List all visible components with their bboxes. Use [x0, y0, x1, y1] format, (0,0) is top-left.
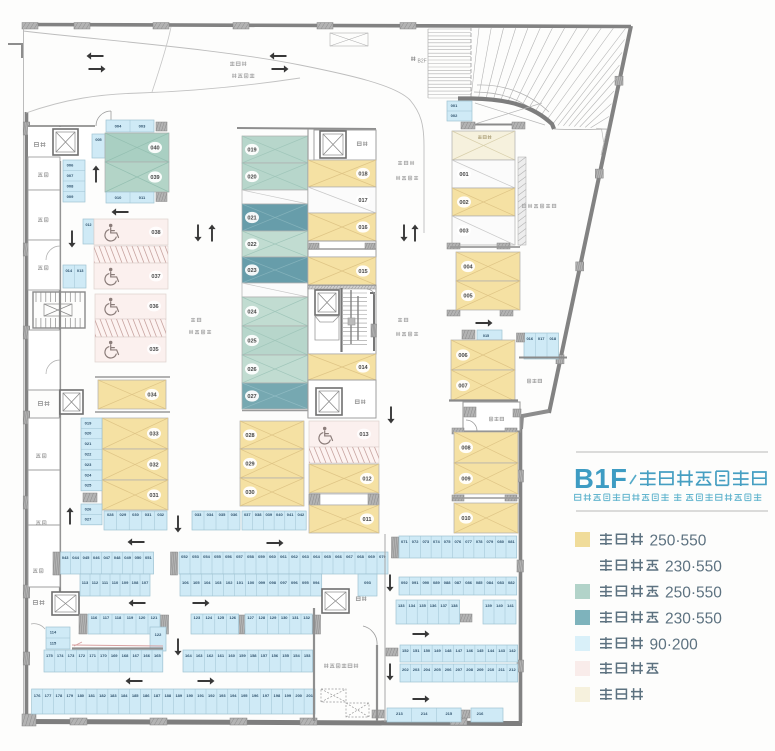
svg-text:072: 072	[412, 539, 419, 544]
svg-text:90·200: 90·200	[650, 637, 699, 654]
svg-text:067: 067	[346, 554, 353, 559]
svg-text:012: 012	[362, 477, 371, 483]
svg-text:211: 211	[498, 667, 505, 672]
svg-text:230·550: 230·550	[665, 559, 722, 576]
svg-text:068: 068	[357, 554, 364, 559]
svg-text:114: 114	[50, 630, 57, 635]
svg-text:181: 181	[88, 693, 95, 698]
svg-text:025: 025	[247, 339, 256, 345]
svg-text:198: 198	[274, 693, 281, 698]
svg-text:058: 058	[247, 554, 254, 559]
svg-text:B2F: B2F	[418, 59, 427, 65]
svg-text:199: 199	[284, 693, 291, 698]
svg-text:148: 148	[445, 648, 452, 653]
svg-text:206: 206	[445, 667, 452, 672]
svg-text:186: 186	[143, 693, 150, 698]
svg-text:101: 101	[237, 580, 244, 585]
svg-text:190: 190	[186, 693, 193, 698]
svg-text:009: 009	[461, 477, 470, 483]
svg-text:128: 128	[258, 615, 265, 620]
svg-text:033: 033	[149, 432, 158, 438]
svg-text:153: 153	[304, 653, 311, 658]
svg-text:005: 005	[95, 138, 101, 142]
svg-text:174: 174	[57, 653, 64, 658]
svg-text:006: 006	[67, 162, 74, 167]
svg-text:028: 028	[245, 433, 254, 439]
svg-text:013: 013	[77, 268, 84, 273]
svg-text:089: 089	[433, 580, 440, 585]
svg-text:159: 159	[239, 653, 246, 658]
svg-text:107: 107	[142, 580, 149, 585]
svg-text:003: 003	[459, 229, 468, 235]
svg-text:043: 043	[62, 555, 69, 560]
svg-text:075: 075	[444, 539, 451, 544]
svg-text:169: 169	[111, 653, 118, 658]
svg-text:212: 212	[509, 667, 516, 672]
svg-text:074: 074	[433, 539, 440, 544]
svg-text:036: 036	[231, 512, 238, 517]
svg-text:010: 010	[115, 195, 122, 200]
svg-text:032: 032	[157, 512, 164, 517]
svg-text:003: 003	[139, 124, 146, 129]
svg-text:145: 145	[477, 648, 484, 653]
svg-text:046: 046	[93, 555, 100, 560]
svg-text:205: 205	[434, 667, 441, 672]
svg-text:173: 173	[68, 653, 75, 658]
svg-text:019: 019	[247, 148, 256, 154]
svg-text:207: 207	[456, 667, 463, 672]
svg-text:140: 140	[496, 603, 503, 608]
svg-text:014: 014	[65, 268, 72, 273]
svg-text:008: 008	[461, 446, 470, 452]
svg-text:055: 055	[214, 554, 221, 559]
svg-text:161: 161	[217, 653, 224, 658]
svg-text:133: 133	[398, 603, 405, 608]
svg-text:076: 076	[455, 539, 462, 544]
svg-text:180: 180	[77, 693, 84, 698]
svg-text:123: 123	[194, 615, 201, 620]
svg-text:073: 073	[422, 539, 429, 544]
svg-text:021: 021	[85, 441, 92, 446]
svg-text:018: 018	[358, 172, 367, 178]
svg-text:170: 170	[100, 653, 107, 658]
svg-text:069: 069	[368, 554, 375, 559]
svg-text:015: 015	[483, 334, 489, 338]
svg-text:172: 172	[78, 653, 85, 658]
svg-text:187: 187	[154, 693, 161, 698]
svg-text:193: 193	[219, 693, 226, 698]
svg-text:185: 185	[132, 693, 139, 698]
svg-text:194: 194	[230, 693, 237, 698]
svg-text:049: 049	[124, 555, 131, 560]
svg-text:171: 171	[89, 653, 96, 658]
svg-text:014: 014	[358, 365, 368, 371]
svg-text:041: 041	[287, 512, 294, 517]
svg-text:040: 040	[150, 146, 159, 152]
svg-text:105: 105	[193, 580, 200, 585]
svg-text:184: 184	[121, 693, 128, 698]
svg-text:113: 113	[82, 580, 89, 585]
svg-text:008: 008	[67, 183, 74, 188]
svg-text:144: 144	[488, 648, 495, 653]
svg-text:109: 109	[122, 580, 129, 585]
svg-text:106: 106	[182, 580, 189, 585]
svg-text:053: 053	[192, 554, 199, 559]
svg-text:059: 059	[258, 554, 265, 559]
svg-text:120: 120	[139, 615, 146, 620]
svg-text:009: 009	[67, 194, 74, 199]
svg-text:196: 196	[252, 693, 259, 698]
svg-text:037: 037	[151, 274, 160, 280]
svg-text:192: 192	[208, 693, 215, 698]
svg-text:007: 007	[67, 173, 74, 178]
svg-text:202: 202	[402, 667, 409, 672]
svg-text:031: 031	[145, 512, 152, 517]
svg-text:048: 048	[114, 555, 121, 560]
svg-text:201: 201	[306, 693, 313, 698]
svg-text:085: 085	[476, 580, 483, 585]
svg-text:152: 152	[402, 648, 409, 653]
svg-text:188: 188	[164, 693, 171, 698]
svg-text:011: 011	[362, 517, 371, 523]
svg-text:097: 097	[280, 580, 287, 585]
svg-text:115: 115	[50, 641, 57, 646]
svg-text:092: 092	[401, 580, 408, 585]
svg-text:001: 001	[451, 103, 458, 108]
svg-text:134: 134	[409, 603, 416, 608]
svg-text:017: 017	[358, 198, 367, 204]
svg-text:204: 204	[423, 667, 430, 672]
svg-text:050: 050	[135, 555, 142, 560]
svg-text:112: 112	[92, 580, 99, 585]
svg-text:037: 037	[244, 512, 251, 517]
svg-text:071: 071	[401, 539, 408, 544]
svg-text:036: 036	[149, 304, 158, 310]
svg-text:001: 001	[459, 172, 468, 178]
svg-text:096: 096	[291, 580, 298, 585]
svg-text:250·550: 250·550	[650, 533, 707, 550]
svg-text:038: 038	[151, 230, 160, 236]
svg-text:024: 024	[247, 310, 257, 316]
svg-text:077: 077	[465, 539, 472, 544]
svg-text:143: 143	[498, 648, 505, 653]
svg-text:028: 028	[107, 512, 114, 517]
svg-text:023: 023	[85, 462, 92, 467]
svg-text:022: 022	[247, 242, 256, 248]
svg-text:122: 122	[155, 632, 162, 637]
svg-text:083: 083	[497, 580, 504, 585]
svg-text:203: 203	[413, 667, 420, 672]
svg-text:164: 164	[185, 653, 192, 658]
svg-text:136: 136	[430, 603, 437, 608]
svg-text:021: 021	[247, 216, 256, 222]
svg-text:156: 156	[271, 653, 278, 658]
svg-text:061: 061	[280, 554, 287, 559]
svg-text:141: 141	[507, 603, 514, 608]
svg-text:005: 005	[463, 294, 472, 300]
svg-text:004: 004	[463, 265, 473, 271]
svg-text:020: 020	[247, 175, 256, 181]
svg-text:103: 103	[215, 580, 222, 585]
svg-text:102: 102	[226, 580, 233, 585]
svg-text:099: 099	[258, 580, 265, 585]
svg-text:200: 200	[295, 693, 302, 698]
svg-text:160: 160	[228, 653, 235, 658]
svg-text:132: 132	[303, 615, 310, 620]
svg-text:020: 020	[85, 431, 92, 436]
svg-text:056: 056	[225, 554, 232, 559]
svg-text:182: 182	[99, 693, 106, 698]
svg-text:130: 130	[281, 615, 288, 620]
svg-text:104: 104	[204, 580, 211, 585]
svg-text:090: 090	[422, 580, 429, 585]
svg-text:026: 026	[247, 367, 256, 373]
svg-text:017: 017	[538, 336, 545, 341]
svg-text:065: 065	[324, 554, 331, 559]
svg-text:162: 162	[207, 653, 214, 658]
svg-text:051: 051	[145, 555, 152, 560]
svg-text:195: 195	[241, 693, 248, 698]
svg-text:057: 057	[236, 554, 243, 559]
svg-text:250·550: 250·550	[665, 585, 722, 602]
svg-text:019: 019	[85, 420, 92, 425]
svg-text:210: 210	[488, 667, 495, 672]
svg-text:038: 038	[255, 512, 262, 517]
svg-text:178: 178	[56, 693, 63, 698]
svg-text:078: 078	[476, 539, 483, 544]
svg-text:034: 034	[207, 512, 214, 517]
svg-text:016: 016	[526, 336, 533, 341]
svg-text:029: 029	[120, 512, 127, 517]
svg-text:139: 139	[485, 603, 492, 608]
svg-text:047: 047	[103, 555, 110, 560]
svg-text:175: 175	[46, 653, 53, 658]
svg-text:154: 154	[293, 653, 300, 658]
svg-text:093: 093	[364, 580, 371, 585]
svg-text:030: 030	[245, 490, 254, 496]
svg-text:158: 158	[250, 653, 257, 658]
svg-text:062: 062	[291, 554, 298, 559]
svg-text:149: 149	[434, 648, 441, 653]
svg-text:137: 137	[440, 603, 447, 608]
svg-text:052: 052	[181, 554, 188, 559]
svg-text:034: 034	[147, 393, 157, 399]
svg-text:060: 060	[269, 554, 276, 559]
svg-text:033: 033	[195, 512, 202, 517]
svg-text:027: 027	[85, 517, 92, 522]
svg-text:150: 150	[423, 648, 430, 653]
svg-text:006: 006	[458, 353, 467, 359]
svg-text:197: 197	[263, 693, 270, 698]
svg-text:191: 191	[197, 693, 204, 698]
svg-text:039: 039	[265, 512, 272, 517]
svg-text:007: 007	[458, 384, 467, 390]
svg-text:054: 054	[203, 554, 210, 559]
svg-text:022: 022	[85, 452, 92, 457]
svg-text:026: 026	[85, 506, 92, 511]
svg-text:168: 168	[122, 653, 129, 658]
svg-text:013: 013	[359, 432, 368, 438]
svg-text:131: 131	[292, 615, 299, 620]
svg-text:027: 027	[247, 394, 256, 400]
svg-text:030: 030	[132, 512, 139, 517]
svg-text:025: 025	[85, 483, 92, 488]
svg-text:126: 126	[229, 615, 236, 620]
svg-text:031: 031	[149, 493, 158, 499]
svg-text:189: 189	[175, 693, 182, 698]
svg-text:095: 095	[302, 580, 309, 585]
svg-text:082: 082	[508, 580, 515, 585]
svg-text:155: 155	[282, 653, 289, 658]
svg-text:035: 035	[219, 512, 226, 517]
svg-text:024: 024	[85, 472, 92, 477]
svg-text:002: 002	[459, 200, 468, 206]
svg-text:157: 157	[261, 653, 268, 658]
svg-text:023: 023	[247, 268, 256, 274]
svg-text:177: 177	[45, 693, 52, 698]
svg-text:176: 176	[34, 693, 41, 698]
svg-text:183: 183	[110, 693, 117, 698]
svg-text:010: 010	[461, 516, 470, 522]
svg-text:042: 042	[298, 512, 305, 517]
svg-text:079: 079	[487, 539, 494, 544]
svg-text:147: 147	[456, 648, 463, 653]
svg-text:088: 088	[444, 580, 451, 585]
svg-text:040: 040	[276, 512, 283, 517]
svg-text:081: 081	[508, 539, 515, 544]
svg-text:087: 087	[455, 580, 462, 585]
svg-text:011: 011	[139, 195, 146, 200]
svg-text:138: 138	[451, 603, 458, 608]
svg-text:213: 213	[396, 711, 403, 716]
svg-text:142: 142	[509, 648, 516, 653]
svg-text:117: 117	[103, 615, 110, 620]
svg-text:002: 002	[451, 113, 458, 118]
svg-text:119: 119	[127, 615, 134, 620]
svg-text:084: 084	[487, 580, 494, 585]
svg-text:215: 215	[445, 711, 452, 716]
svg-text:B1F: B1F	[574, 463, 627, 494]
svg-text:125: 125	[217, 615, 224, 620]
svg-text:151: 151	[413, 648, 420, 653]
svg-text:111: 111	[102, 580, 109, 585]
svg-text:135: 135	[419, 603, 426, 608]
svg-text:035: 035	[149, 347, 158, 353]
svg-text:044: 044	[72, 555, 79, 560]
svg-text:100: 100	[248, 580, 255, 585]
svg-text:116: 116	[91, 615, 98, 620]
svg-text:121: 121	[151, 615, 158, 620]
svg-text:216: 216	[477, 711, 484, 716]
svg-text:214: 214	[421, 711, 428, 716]
svg-text:066: 066	[335, 554, 342, 559]
svg-text:004: 004	[115, 124, 122, 129]
svg-text:098: 098	[269, 580, 276, 585]
svg-text:012: 012	[86, 223, 92, 227]
svg-text:167: 167	[132, 653, 139, 658]
svg-text:094: 094	[313, 580, 320, 585]
svg-text:080: 080	[497, 539, 504, 544]
svg-text:118: 118	[115, 615, 122, 620]
svg-text:179: 179	[66, 693, 73, 698]
svg-text:208: 208	[466, 667, 473, 672]
svg-text:146: 146	[466, 648, 473, 653]
svg-text:127: 127	[247, 615, 254, 620]
svg-text:166: 166	[143, 653, 150, 658]
svg-text:063: 063	[302, 554, 309, 559]
svg-text:016: 016	[358, 225, 367, 231]
svg-text:129: 129	[270, 615, 277, 620]
svg-text:165: 165	[154, 653, 161, 658]
svg-text:086: 086	[465, 580, 472, 585]
svg-text:039: 039	[150, 175, 159, 181]
svg-text:018: 018	[549, 336, 556, 341]
svg-text:110: 110	[112, 580, 119, 585]
svg-text:124: 124	[205, 615, 212, 620]
svg-text:163: 163	[196, 653, 203, 658]
svg-text:029: 029	[245, 462, 254, 468]
svg-text:032: 032	[149, 463, 158, 469]
svg-text:091: 091	[412, 580, 419, 585]
svg-text:230·550: 230·550	[665, 611, 722, 628]
svg-text:045: 045	[83, 555, 90, 560]
svg-text:209: 209	[477, 667, 484, 672]
svg-text:108: 108	[132, 580, 139, 585]
svg-text:064: 064	[313, 554, 320, 559]
svg-text:015: 015	[358, 269, 367, 275]
